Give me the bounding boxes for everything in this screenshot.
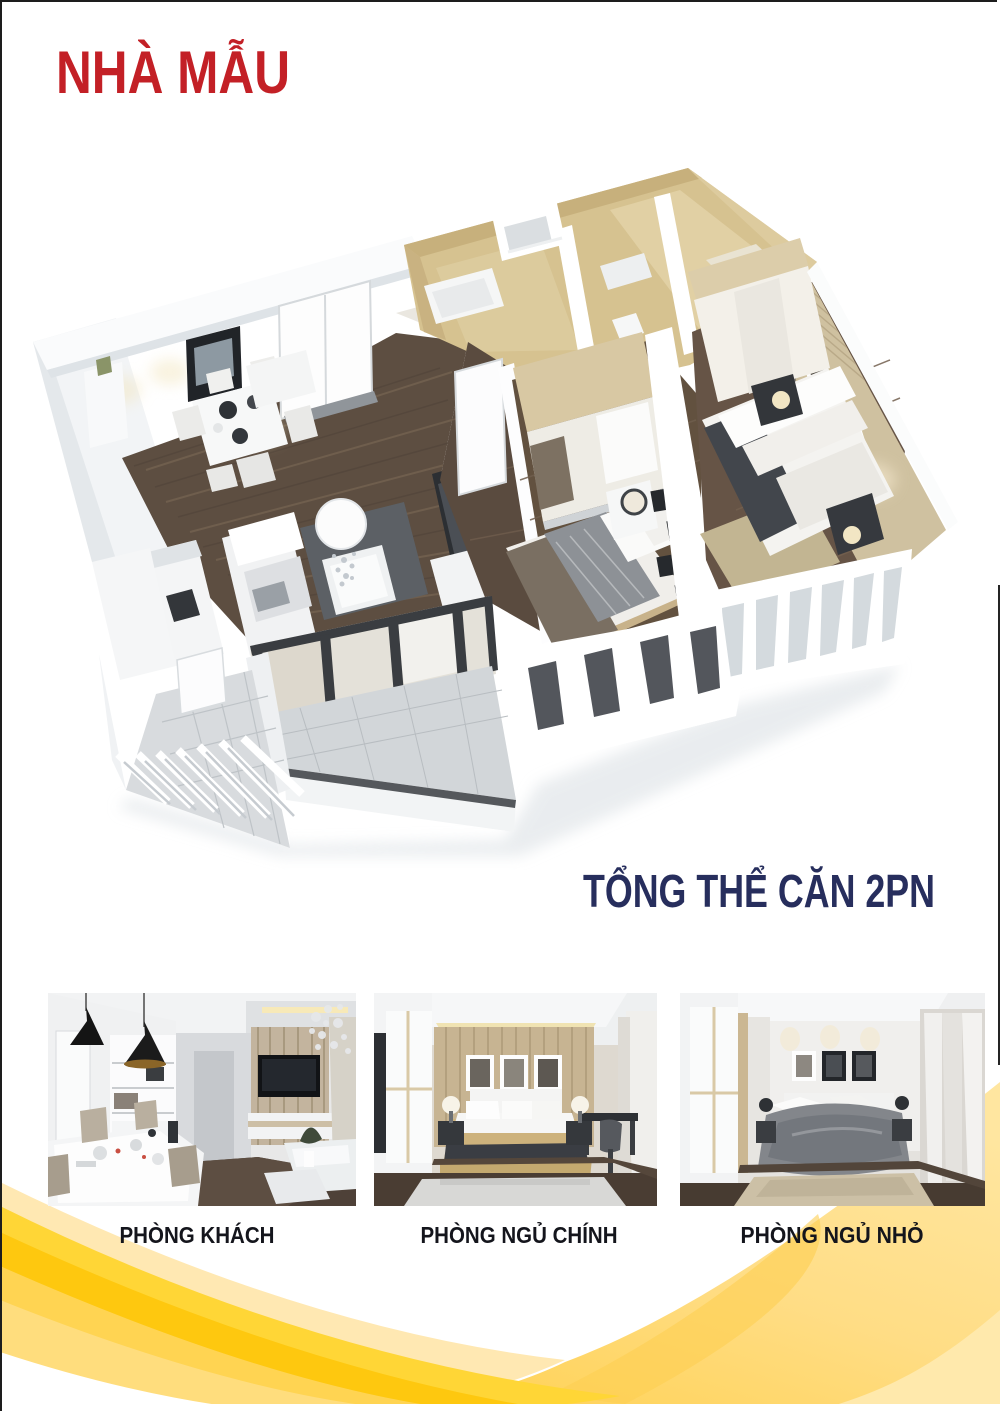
svg-text:NHÀ MẪU: NHÀ MẪU <box>56 39 290 106</box>
svg-text:PHÒNG KHÁCH: PHÒNG KHÁCH <box>120 1221 275 1248</box>
svg-text:PHÒNG NGỦ CHÍNH: PHÒNG NGỦ CHÍNH <box>421 1220 618 1248</box>
svg-text:TỔNG THỂ CĂN 2PN: TỔNG THỂ CĂN 2PN <box>583 865 935 917</box>
svg-text:PHÒNG NGỦ NHỎ: PHÒNG NGỦ NHỎ <box>741 1220 924 1248</box>
